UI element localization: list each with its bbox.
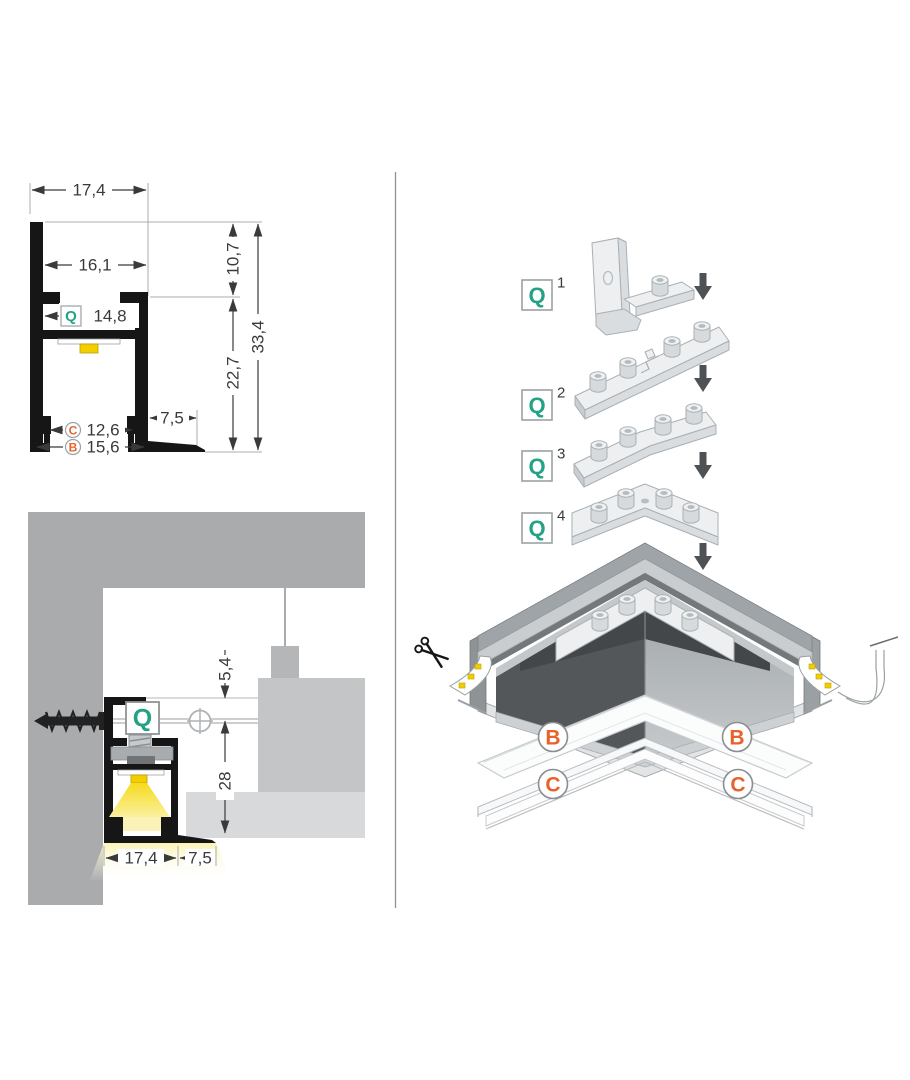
step-badge-q4: Q 4 (522, 508, 565, 544)
ceiling-panel (186, 792, 365, 838)
down-arrow-3 (694, 452, 712, 479)
mount-bracket (258, 678, 365, 792)
dim-upper-height: 10,7 (224, 224, 243, 295)
step-q4-number: 4 (557, 508, 565, 525)
marker-c-label: C (69, 424, 78, 438)
marker-b-left: B (539, 723, 568, 752)
led-tape (118, 770, 164, 775)
dim-recess-value: 5,4 (216, 657, 235, 681)
down-arrow-1 (694, 273, 712, 300)
screw-head-symbol (187, 708, 213, 734)
dim-b-width-value: 15,6 (86, 438, 119, 457)
marker-c-left: C (539, 770, 568, 799)
dim-lower-height-value: 22,7 (224, 356, 243, 389)
step-badge-q1: Q 1 (522, 275, 565, 311)
step-badge-q3: Q 3 (522, 446, 565, 482)
dim-install-flange: 7,5 (180, 849, 215, 868)
step-q2-label: Q (528, 393, 545, 418)
dim-flange-width: 7,5 (150, 409, 196, 428)
dim-recess: 5,4 (216, 650, 235, 698)
dim-top-width: 17,4 (32, 181, 146, 200)
led-tape (58, 339, 120, 344)
connector-q3 (574, 404, 716, 487)
step-q3-label: Q (528, 454, 545, 479)
marker-b-right: B (723, 723, 752, 752)
down-arrow-4 (694, 543, 712, 570)
technical-drawing-page: 17,4 16,1 10,7 33,4 Q 14,8 (0, 0, 910, 1080)
marker-c-right-label: C (730, 774, 745, 797)
mount-bar-center (127, 756, 155, 765)
marker-c-right: C (724, 770, 753, 799)
light-beam (109, 783, 170, 817)
marker-b-label: B (69, 441, 78, 455)
step-badge-q2: Q 2 (522, 385, 565, 421)
dim-upper-height-value: 10,7 (224, 242, 243, 275)
cross-section-diagram: 17,4 16,1 10,7 33,4 Q 14,8 (30, 181, 268, 457)
marker-q-label: Q (65, 308, 77, 325)
hanger-block (271, 646, 299, 678)
dim-inner-width-value: 16,1 (78, 256, 111, 275)
step-q1-label: Q (528, 283, 545, 308)
step-q2-number: 2 (557, 385, 565, 402)
step-q3-number: 3 (557, 446, 565, 463)
assembly-diagram: Q 1 Q 2 Q 3 Q 4 (414, 238, 898, 829)
marker-q-label: Q (133, 705, 152, 733)
led-chip (131, 775, 147, 783)
dim-install-flange-value: 7,5 (188, 849, 212, 868)
dim-lower-height: 22,7 (224, 299, 243, 450)
dim-b-width: B 15,6 (37, 438, 144, 457)
marker-q-badge: Q (126, 702, 159, 734)
dim-depth-value: 28 (216, 772, 235, 791)
connector-q4 (572, 484, 718, 545)
dim-total-height-value: 33,4 (249, 320, 268, 353)
strip-bend-right (838, 637, 898, 704)
connector-q1 (592, 238, 694, 335)
led-chip (80, 344, 98, 353)
diagram-canvas: 17,4 16,1 10,7 33,4 Q 14,8 (0, 0, 910, 1080)
down-arrow-2 (694, 365, 712, 392)
step-q4-label: Q (528, 516, 545, 541)
led-shelf (111, 764, 173, 770)
dim-total-height: 33,4 (249, 224, 268, 450)
dim-flange-width-value: 7,5 (160, 409, 184, 428)
dim-channel-width-value: 14,8 (93, 307, 126, 326)
marker-b-left-label: B (545, 727, 560, 750)
dim-top-width-value: 17,4 (72, 181, 105, 200)
dim-inner-width: 16,1 (45, 256, 146, 275)
scissors-icon (414, 636, 450, 669)
dim-install-width-value: 17,4 (124, 849, 157, 868)
step-q1-number: 1 (557, 275, 565, 292)
install-diagram: Q 5,4 28 17,4 7,5 (28, 512, 365, 905)
marker-b-right-label: B (729, 727, 744, 750)
dim-channel-width: Q 14,8 (45, 303, 139, 328)
marker-c-left-label: C (545, 774, 560, 797)
